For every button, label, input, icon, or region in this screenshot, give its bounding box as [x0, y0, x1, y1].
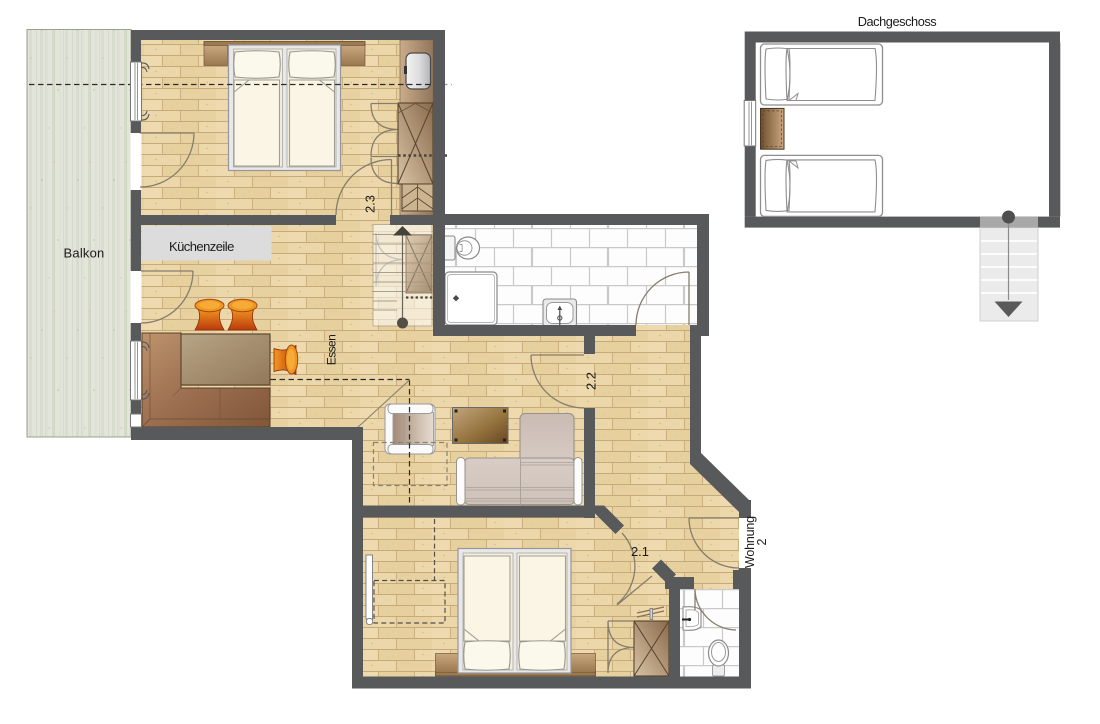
svg-text:Balkon: Balkon [64, 246, 105, 261]
svg-text:Küchenzeile: Küchenzeile [169, 239, 234, 254]
svg-text:Dachgeschoss: Dachgeschoss [858, 14, 937, 29]
svg-text:2.2: 2.2 [584, 372, 599, 390]
svg-text:2: 2 [755, 538, 769, 545]
svg-text:2.3: 2.3 [363, 195, 378, 213]
svg-text:Essen: Essen [325, 335, 339, 365]
svg-text:2.1: 2.1 [631, 544, 649, 559]
